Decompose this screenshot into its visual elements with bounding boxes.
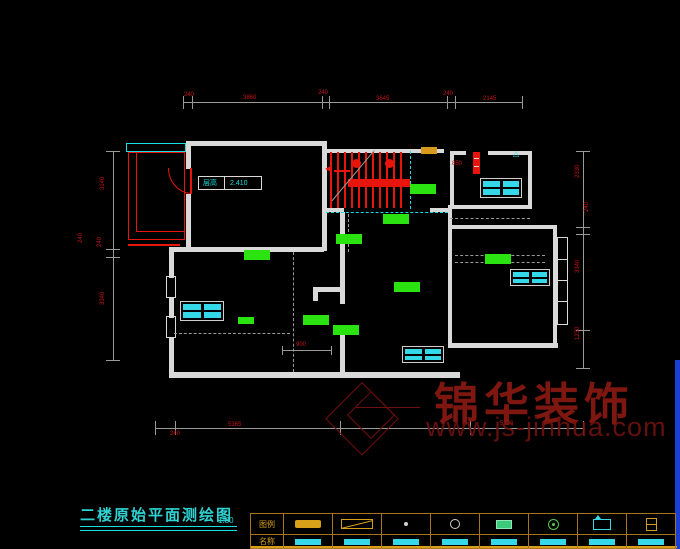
room-label-value: 2.410 <box>230 180 248 187</box>
tick <box>155 421 156 435</box>
tick <box>106 257 120 258</box>
legend-caption <box>442 539 468 545</box>
watermark-logo-line <box>356 407 420 408</box>
wall <box>528 151 532 209</box>
wall <box>169 247 174 278</box>
tick <box>576 227 590 228</box>
dim-text: 5365 <box>228 422 241 428</box>
furniture-cell <box>532 279 548 284</box>
legend-symbol-cell <box>480 514 528 535</box>
furniture-cell <box>513 279 529 284</box>
furniture-cell <box>183 312 201 318</box>
dash <box>174 333 290 334</box>
dash <box>450 218 530 219</box>
wall <box>448 225 557 229</box>
dim-text: 2330 <box>575 165 581 178</box>
wall-bottom <box>169 372 460 378</box>
switch-icon <box>548 519 559 530</box>
furniture-cell <box>483 189 500 195</box>
legend-window <box>332 514 381 548</box>
door-leaf <box>190 168 192 194</box>
legend-caption-cell <box>284 535 332 548</box>
wall <box>322 141 327 251</box>
tick <box>106 360 120 361</box>
tick <box>282 346 283 355</box>
room-label-divider <box>224 176 225 190</box>
legend-round-light <box>430 514 479 548</box>
furniture-cell <box>183 304 201 310</box>
legend-caption <box>393 539 419 545</box>
legend-caption-cell <box>333 535 381 548</box>
tick <box>576 234 590 235</box>
tick <box>455 96 456 109</box>
legend-symbol-cell <box>578 514 626 535</box>
dim-text: 240 <box>584 202 590 212</box>
legend-socket <box>479 514 528 548</box>
round-light-icon <box>450 519 460 529</box>
dim-line <box>282 350 332 351</box>
stair-tread <box>337 152 339 208</box>
furniture-cell <box>513 272 529 277</box>
legend-caption <box>491 539 517 545</box>
dim-text: 900 <box>296 342 306 348</box>
dim-text: 2145 <box>483 96 496 102</box>
balcony-line <box>128 244 180 246</box>
level-tag <box>238 317 254 324</box>
cad-floorplan-canvas: ◀△24038602403645240214531402403340240233… <box>0 0 680 549</box>
legend-caption-cell <box>627 535 675 548</box>
cabinet <box>480 178 522 198</box>
wall <box>450 205 532 209</box>
legend-caption-cell <box>431 535 479 548</box>
legend-header-top: 图例 <box>251 514 283 535</box>
dim-text: 240 <box>318 90 328 96</box>
furniture-cell <box>425 349 442 354</box>
furniture-cell <box>405 349 422 354</box>
stair-rail <box>348 179 410 187</box>
legend-caption-cell <box>529 535 577 548</box>
room-tag <box>485 254 511 264</box>
legend-header: 图例 名称 <box>251 514 283 548</box>
legend-caption <box>638 539 664 545</box>
door-hatch <box>474 166 479 167</box>
dim-line <box>113 151 114 361</box>
tick <box>576 151 590 152</box>
tick <box>331 346 332 355</box>
furniture-cell <box>425 356 442 361</box>
legend-caption <box>540 539 566 545</box>
dash <box>293 252 294 372</box>
dash <box>348 214 349 252</box>
stair-tread <box>344 152 346 208</box>
dim-text: 3860 <box>243 95 256 101</box>
cabinet <box>402 346 444 363</box>
dim-text: 3645 <box>376 96 389 102</box>
stair-arrow: ◀ <box>325 165 331 173</box>
wall-spine <box>448 205 452 348</box>
bay-window <box>557 237 568 325</box>
dim-text: 3340 <box>100 292 106 305</box>
wall <box>313 287 318 301</box>
legend-caption <box>589 539 615 545</box>
legend-door <box>283 514 332 548</box>
dim-text: 850 <box>452 161 462 167</box>
mullion <box>557 280 568 281</box>
mullion <box>557 259 568 260</box>
wall <box>450 151 454 209</box>
title-underline <box>80 530 237 531</box>
furniture-cell <box>532 272 548 277</box>
tick <box>447 96 448 109</box>
ceiling-light-icon <box>404 522 408 526</box>
wall <box>186 194 191 252</box>
window <box>166 316 176 338</box>
tick <box>329 96 330 109</box>
furniture-cell <box>503 181 520 187</box>
room-tag <box>303 315 329 325</box>
room-label-left: 层高 <box>203 180 217 187</box>
legend-header-bottom: 名称 <box>251 535 283 548</box>
wall-top-left <box>186 141 327 146</box>
stair-arrow-tail <box>334 170 350 172</box>
socket-icon <box>496 520 512 529</box>
wall <box>340 332 345 374</box>
wall <box>448 343 558 348</box>
dim-text: 240 <box>97 237 103 247</box>
wall <box>169 298 174 318</box>
tick <box>322 96 323 109</box>
dash <box>326 212 448 213</box>
furniture-cell <box>405 356 422 361</box>
tick <box>106 249 120 250</box>
window <box>166 276 176 298</box>
dim-line <box>183 102 523 103</box>
legend-symbol-cell <box>529 514 577 535</box>
legend-bathtub <box>577 514 626 548</box>
room-tag <box>333 325 359 335</box>
dim-text: 240 <box>184 92 194 98</box>
dim-text: 3140 <box>100 177 106 190</box>
window-icon <box>341 519 373 529</box>
tick <box>106 151 120 152</box>
legend-symbol-cell <box>431 514 479 535</box>
stair-dash <box>410 151 411 209</box>
cabinet <box>180 301 224 321</box>
legend-caption <box>344 539 370 545</box>
watermark-url: www.js-jinhua.com <box>426 412 667 443</box>
orange-marker <box>421 147 437 154</box>
north-marker: △ <box>513 150 519 158</box>
dim-text: 3340 <box>575 260 581 273</box>
legend-toilet <box>626 514 675 548</box>
toilet-icon <box>646 518 657 531</box>
wall <box>186 141 191 169</box>
balcony-wall-inner <box>136 152 185 232</box>
wall <box>488 151 532 155</box>
door-hatch <box>474 158 479 159</box>
legend-caption-cell <box>382 535 430 548</box>
legend-table: 图例 名称 <box>250 513 676 549</box>
room-tag <box>410 184 436 194</box>
legend-caption-cell <box>578 535 626 548</box>
legend-ceiling-light <box>381 514 430 548</box>
door-leaf <box>473 152 480 174</box>
furniture-cell <box>483 181 500 187</box>
dim-text: 1230 <box>575 327 581 340</box>
legend-symbol-cell <box>382 514 430 535</box>
furniture-cell <box>204 312 222 318</box>
furniture-cell <box>503 189 520 195</box>
stair-post <box>385 159 394 168</box>
dim-line <box>583 151 584 369</box>
room-tag <box>383 214 409 224</box>
plan-layer: ◀△24038602403645240214531402403340240233… <box>0 0 680 549</box>
legend-caption-cell <box>480 535 528 548</box>
legend-symbol-cell <box>284 514 332 535</box>
tick <box>522 96 523 109</box>
dim-text: 240 <box>78 233 84 243</box>
mullion <box>557 301 568 302</box>
balcony-window <box>126 143 186 152</box>
dim-text: 240 <box>170 431 180 437</box>
room-tag <box>336 234 362 244</box>
title-underline <box>80 526 237 527</box>
legend-switch <box>528 514 577 548</box>
bathtub-icon <box>593 519 611 530</box>
legend-symbol-cell <box>627 514 675 535</box>
cabinet <box>510 269 550 286</box>
legend-symbol-cell <box>333 514 381 535</box>
drawing-title: 二楼原始平面测绘图 <box>80 504 233 525</box>
dim-text: 240 <box>443 91 453 97</box>
room-tag <box>244 250 270 260</box>
legend-caption <box>295 539 321 545</box>
door-icon <box>295 520 321 528</box>
furniture-cell <box>204 304 222 310</box>
drawing-scale: 1:80 <box>218 516 234 525</box>
legend-items <box>283 514 675 548</box>
room-tag <box>394 282 420 292</box>
